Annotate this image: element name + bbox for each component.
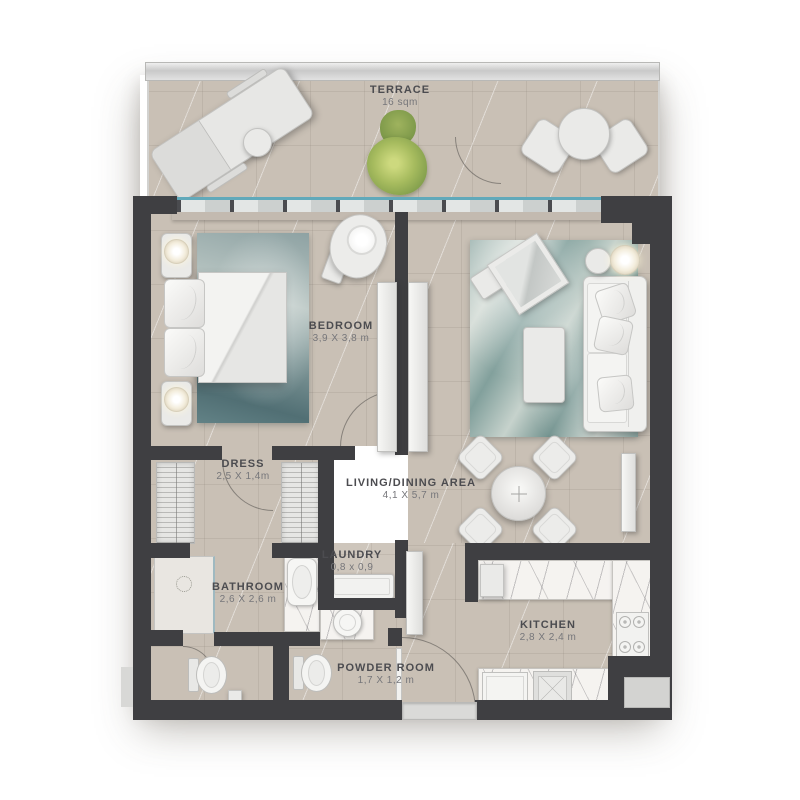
tv-panel bbox=[408, 282, 428, 452]
kitchen-dims: 2,8 X 2,4 m bbox=[488, 632, 608, 643]
wall bbox=[318, 446, 334, 558]
sofa-pillow bbox=[596, 374, 634, 412]
powder-sink bbox=[333, 608, 362, 637]
wall bbox=[151, 630, 183, 646]
wall bbox=[214, 632, 320, 646]
dress-dims: 2,5 X 1,4m bbox=[193, 471, 293, 482]
sofa-pillow bbox=[593, 315, 635, 357]
powder-name: POWDER ROOM bbox=[316, 662, 456, 674]
floor-plan: TERRACE 16 sqm BEDROOM 3,9 X 3,8 m LIVIN… bbox=[0, 0, 800, 800]
toilet bbox=[188, 654, 228, 694]
wardrobe bbox=[156, 462, 195, 544]
bedroom-dims: 3,9 X 3,8 m bbox=[281, 333, 401, 344]
terrace-name: TERRACE bbox=[300, 84, 500, 96]
window-sill bbox=[172, 211, 602, 220]
coffee-table bbox=[523, 327, 565, 403]
wall bbox=[273, 646, 289, 702]
floor-lamp-icon bbox=[610, 245, 640, 275]
entry-niche bbox=[624, 677, 670, 708]
laundry-name: LAUNDRY bbox=[292, 549, 412, 561]
entry-threshold bbox=[402, 702, 477, 720]
bed bbox=[198, 272, 287, 383]
living-dims: 4,1 X 5,7 m bbox=[321, 490, 501, 501]
kitchen-name: KITCHEN bbox=[488, 619, 608, 631]
toilet-bowl bbox=[196, 656, 227, 694]
console-table bbox=[621, 453, 636, 532]
laundry-dims: 0,8 x 0,9 bbox=[292, 562, 412, 573]
living-label: LIVING/DINING AREA 4,1 X 5,7 m bbox=[321, 477, 501, 501]
bathroom-label: BATHROOM 2,6 X 2,6 m bbox=[188, 581, 308, 605]
laundry-label: LAUNDRY 0,8 x 0,9 bbox=[292, 549, 412, 573]
wall bbox=[151, 543, 190, 558]
burner-icon bbox=[619, 641, 631, 653]
wall bbox=[465, 560, 478, 602]
side-table bbox=[585, 248, 611, 274]
wall-left bbox=[133, 196, 151, 720]
pillow bbox=[164, 328, 205, 377]
washing-machine bbox=[330, 574, 394, 599]
burner-icon bbox=[633, 641, 645, 653]
bathroom-dims: 2,6 X 2,6 m bbox=[188, 594, 308, 605]
dress-name: DRESS bbox=[193, 458, 293, 470]
bedroom-name: BEDROOM bbox=[281, 320, 401, 332]
kitchen-label: KITCHEN 2,8 X 2,4 m bbox=[488, 619, 608, 643]
terrace-dims: 16 sqm bbox=[300, 97, 500, 108]
wall-kitchen-top bbox=[465, 543, 650, 560]
wall bbox=[388, 628, 402, 646]
dress-label: DRESS 2,5 X 1,4m bbox=[193, 458, 293, 482]
burner-icon bbox=[633, 616, 645, 628]
living-name: LIVING/DINING AREA bbox=[321, 477, 501, 489]
powder-dims: 1,7 X 1,2 m bbox=[316, 675, 456, 686]
terrace-label: TERRACE 16 sqm bbox=[300, 84, 500, 108]
bedroom-label: BEDROOM 3,9 X 3,8 m bbox=[281, 320, 401, 344]
bathroom-name: BATHROOM bbox=[188, 581, 308, 593]
wall-bottom bbox=[133, 700, 402, 720]
burner-icon bbox=[619, 616, 631, 628]
wall-right bbox=[650, 196, 672, 720]
pillow bbox=[164, 279, 205, 328]
powder-label: POWDER ROOM 1,7 X 1,2 m bbox=[316, 662, 456, 686]
wall bbox=[318, 598, 402, 610]
wardrobe-panel bbox=[377, 282, 397, 452]
kitchen-appliance bbox=[480, 564, 504, 597]
outdoor-table bbox=[558, 108, 610, 160]
stove bbox=[616, 612, 649, 660]
table-lamp-icon bbox=[164, 239, 189, 264]
terrace-railing bbox=[145, 62, 660, 81]
table-lamp-icon bbox=[164, 387, 189, 412]
plant-large-icon bbox=[367, 137, 427, 195]
terrace-side-table bbox=[243, 128, 272, 157]
sliding-glass-wall bbox=[177, 197, 601, 212]
